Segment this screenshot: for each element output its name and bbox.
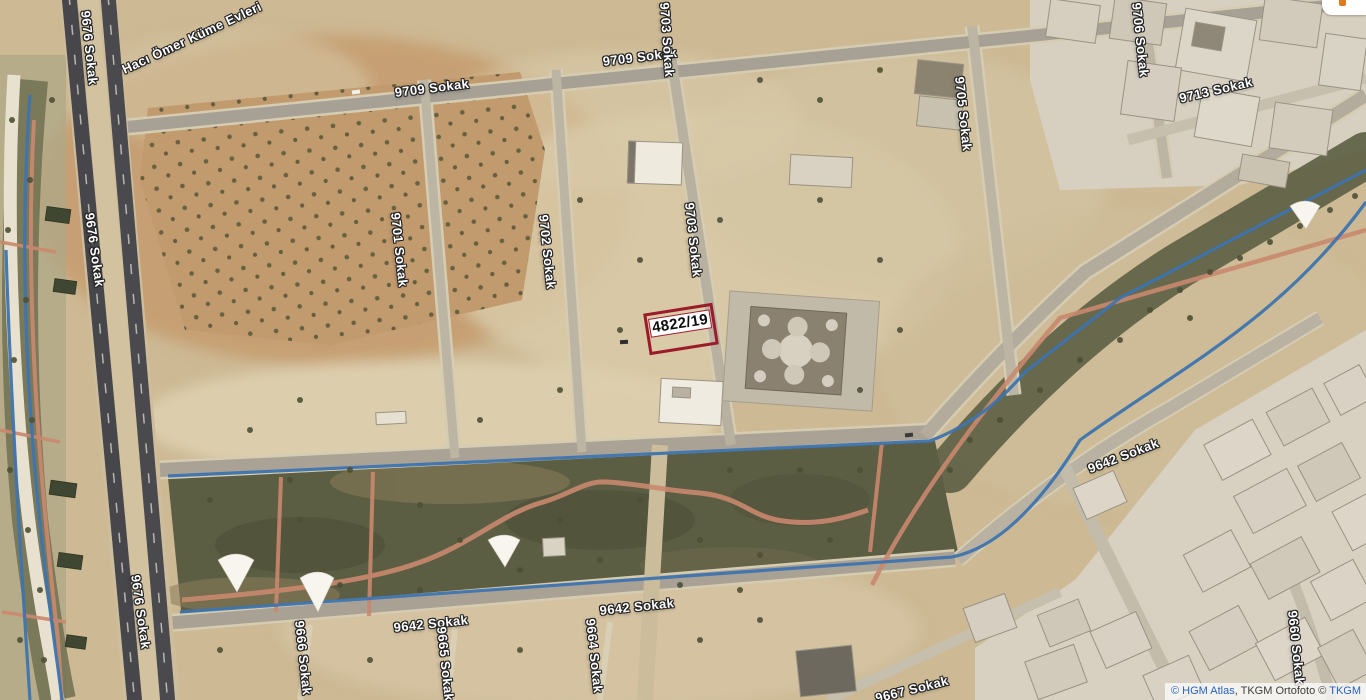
attribution-text: , TKGM Ortofoto © (1235, 685, 1330, 697)
attribution-link-hgm-atlas[interactable]: © HGM Atlas (1171, 685, 1235, 697)
map-canvas[interactable]: 4822/19 Hacı Ömer Küme Evleri 9676 Sokak… (0, 0, 1366, 700)
control-orange-icon (1339, 0, 1346, 6)
satellite-imagery (0, 0, 1366, 700)
map-attribution: © HGM Atlas, TKGM Ortofoto © TKGM (1165, 683, 1366, 700)
parcel-number-label: 4822/19 (648, 309, 712, 337)
map-control-partial[interactable] (1322, 0, 1366, 15)
attribution-link-tkgm[interactable]: TKGM (1329, 685, 1361, 697)
